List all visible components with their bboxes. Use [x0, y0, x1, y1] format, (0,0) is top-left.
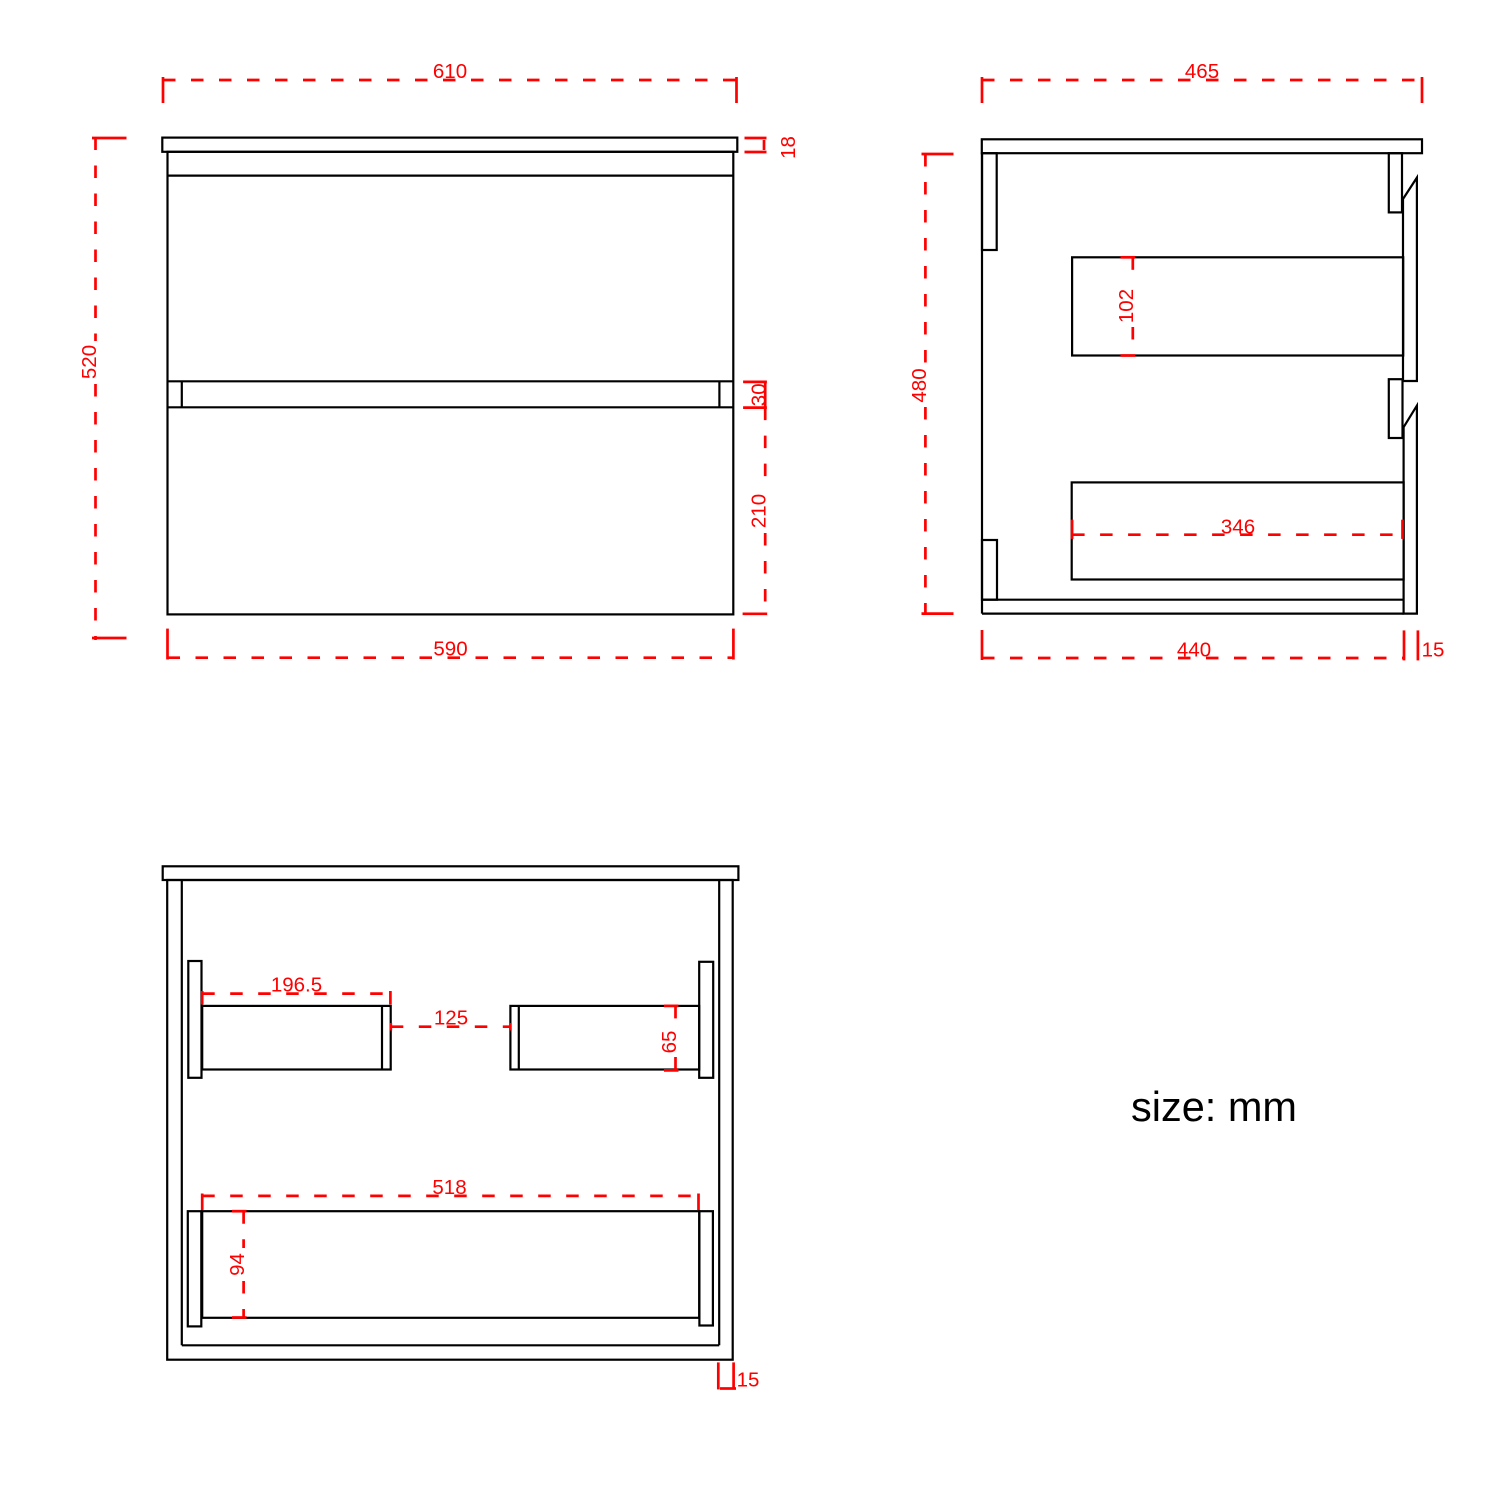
svg-text:15: 15 [737, 1369, 760, 1392]
svg-text:480: 480 [908, 368, 931, 402]
svg-text:65: 65 [658, 1031, 681, 1054]
svg-text:size: mm: size: mm [1131, 1083, 1297, 1130]
svg-text:30: 30 [748, 383, 771, 406]
svg-text:610: 610 [433, 60, 467, 83]
svg-text:518: 518 [432, 1176, 466, 1199]
svg-text:346: 346 [1221, 516, 1255, 539]
svg-text:94: 94 [226, 1253, 249, 1276]
svg-text:102: 102 [1115, 289, 1138, 323]
svg-text:15: 15 [1422, 639, 1445, 662]
svg-text:125: 125 [434, 1007, 468, 1030]
svg-text:440: 440 [1177, 639, 1211, 662]
svg-text:210: 210 [748, 494, 771, 528]
svg-text:520: 520 [78, 345, 101, 379]
svg-text:590: 590 [433, 638, 467, 661]
svg-text:196.5: 196.5 [271, 974, 322, 997]
svg-text:18: 18 [777, 136, 800, 159]
svg-text:465: 465 [1185, 60, 1219, 83]
